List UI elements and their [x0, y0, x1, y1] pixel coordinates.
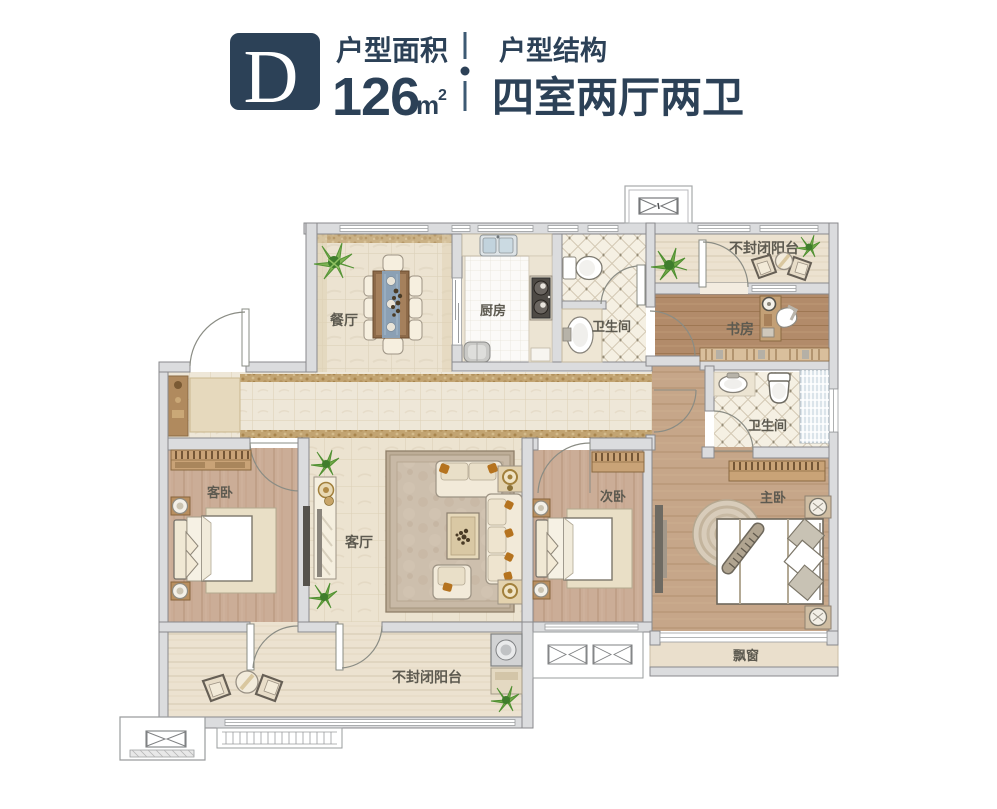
svg-text:客厅: 客厅	[344, 534, 373, 550]
svg-text:户型面积: 户型面积	[336, 34, 448, 66]
svg-text:户型结构: 户型结构	[499, 35, 607, 66]
svg-text:客卧: 客卧	[207, 485, 233, 500]
svg-text:四室两厅两卫: 四室两厅两卫	[492, 74, 744, 121]
svg-text:卫生间: 卫生间	[748, 418, 787, 433]
svg-text:餐厅: 餐厅	[329, 312, 358, 328]
svg-text:m: m	[416, 90, 439, 120]
svg-text:D: D	[244, 35, 299, 119]
svg-text:次卧: 次卧	[600, 489, 626, 504]
svg-text:飘窗: 飘窗	[733, 648, 759, 663]
svg-text:2: 2	[438, 87, 447, 104]
svg-text:不封闭阳台: 不封闭阳台	[392, 669, 462, 685]
svg-text:书房: 书房	[726, 321, 754, 337]
svg-text:主卧: 主卧	[760, 490, 786, 505]
svg-text:126: 126	[332, 67, 419, 127]
svg-text:厨房: 厨房	[480, 303, 506, 318]
svg-text:卫生间: 卫生间	[592, 319, 631, 334]
